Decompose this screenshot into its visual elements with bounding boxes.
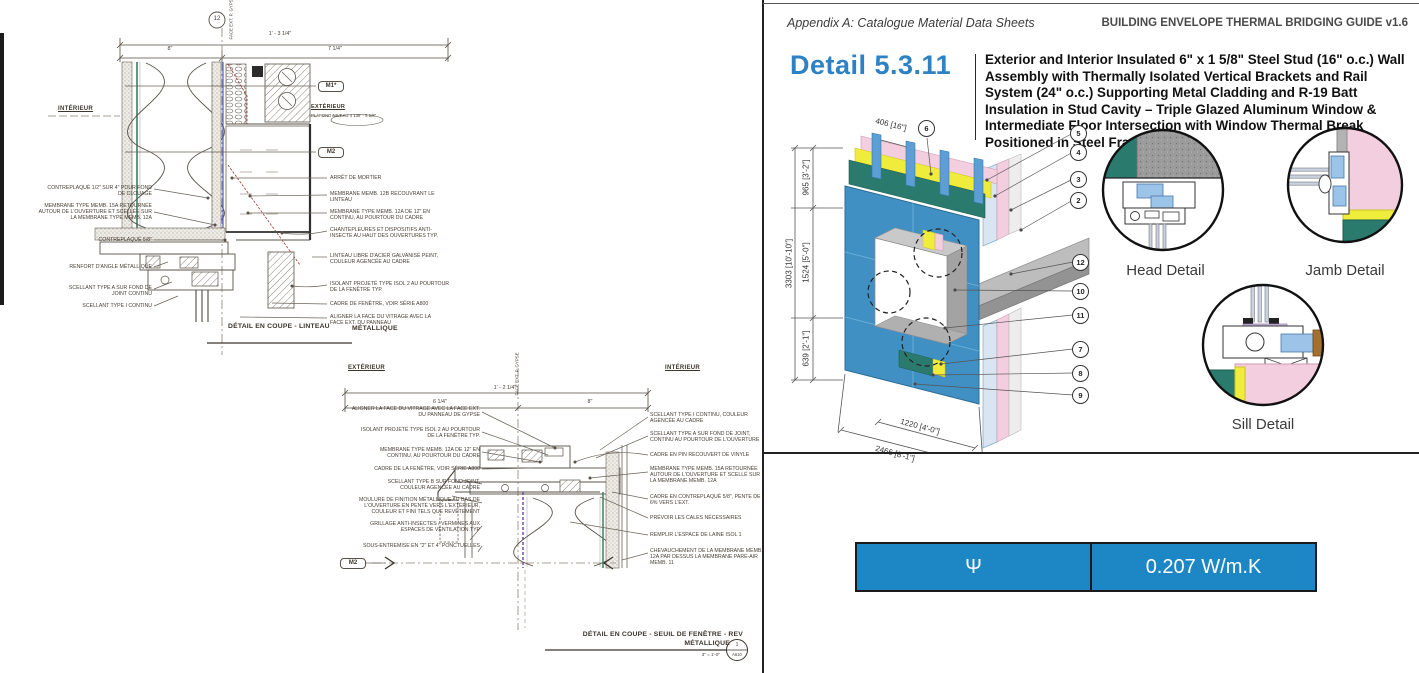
dim-window-height: 1524 [5'-0"] [802, 228, 811, 298]
sill-caption-line1: DÉTAIL EN COUPE - SEUIL DE FENÊTRE - REV [545, 631, 743, 638]
sill-scale: 3" = 1'-0" [645, 652, 720, 657]
sill-exterior-label: EXTÉRIEUR [348, 365, 385, 371]
sill-label-left: SOUS-ENTREMISE EN "2" ET 4" PONCTUELLES [340, 543, 480, 549]
document-page: 12 FACE EXT. P. GYPSE 1' - 3 1/4" 8" 7 1… [0, 0, 1419, 673]
lintel-label-left: CONTREPLAQUÉ 1/2" SUR 4" POUR FOND DE CL… [42, 185, 152, 197]
lintel-label-right: CADRE DE FENÊTRE, VOIR SÉRIE A800 [330, 301, 450, 307]
detail-number: Detail 5.3.11 [790, 50, 951, 81]
sill-caption-line2: MÉTALLIQUE [545, 640, 730, 647]
callout-6: 6 [918, 120, 935, 137]
lintel-label-left: SCELLANT TYPE I CONTINU [62, 303, 152, 309]
sill-label-left: MEMBRANE TYPE MEMB. 12A DE 12" EN CONTIN… [355, 447, 480, 459]
sill-bubble-number: 1 [727, 642, 747, 648]
lintel-label-right: CHANTEPLEURES ET DISPOSITIFS ANTI-INSECT… [330, 227, 450, 239]
dim-below-window: 639 [2'-1"] [802, 319, 811, 379]
jamb-detail-label: Jamb Detail [1300, 262, 1390, 279]
lintel-dim-total: 1' - 3 1/4" [250, 31, 310, 37]
lintel-label-right: MEMBRANE MEMB. 12B RECOUVRANT LE LINTEAU [330, 191, 455, 203]
sill-dim-right: 8" [570, 399, 610, 405]
sill-label-right: MEMBRANE TYPE MEMB. 15A RETOURNÉE AUTOUR… [650, 466, 763, 485]
lintel-dim-right: 7 1/4" [315, 46, 355, 52]
sill-dim-left: 6 1/4" [420, 399, 460, 405]
lintel-callout-m1: M1* [318, 81, 344, 92]
page-divider [762, 0, 764, 673]
sill-dim-total: 1' - 2 1/4" [475, 385, 535, 391]
sill-label-right: SCELLANT TYPE I CONTINU, COULEUR AGENCÉE… [650, 412, 770, 424]
sill-detail-label: Sill Detail [1225, 416, 1301, 433]
lintel-label-left: CONTREPLAQUÉ 5/8" [72, 237, 152, 243]
sill-label-right: PRÉVOIR LES CALES NÉCESSAIRES [650, 515, 763, 521]
lintel-face-ref: FACE EXT. P. GYPSE [229, 0, 234, 40]
lintel-ceiling-label: PLAFOND NIVEAU 4 138' - 5 5/8" [311, 113, 401, 118]
lintel-interior-label: INTÉRIEUR [58, 106, 93, 112]
lintel-dim-left: 8" [150, 46, 190, 52]
dim-above-window: 965 [3'-2"] [802, 148, 811, 208]
psi-value-cell: 0.207 W/m.K [1092, 544, 1315, 590]
lintel-callout-m2: M2 [318, 147, 344, 158]
cad-drawings-linework [0, 0, 763, 673]
guide-title-header: BUILDING ENVELOPE THERMAL BRIDGING GUIDE… [1040, 17, 1408, 29]
sill-label-left: MOULURE DE FINITION MÉTALLIQUE AU BAS DE… [345, 497, 480, 516]
sill-label-right: CADRE EN PIN RECOUVERT DE VINYLE [650, 452, 763, 458]
ceiling-prefix: PLAFOND NIVEAU 4 [311, 113, 352, 118]
psi-value-table: Ψ 0.207 W/m.K [855, 542, 1317, 592]
sill-label-right: CHEVAUCHEMENT DE LA MEMBRANE MEMB. 12A P… [650, 548, 763, 567]
ceiling-elevation: 138' - 5 5/8" [353, 113, 376, 118]
sill-callout-m2: M2 [340, 558, 366, 569]
lintel-label-right: ARRÊT DE MORTIER [330, 175, 450, 181]
sill-label-left: SCELLANT TYPE B SUR FOND JOINT, COULEUR … [365, 479, 480, 491]
sill-label-left: ALIGNER LA FACE DU VITRAGE AVEC LA FACE … [350, 406, 480, 418]
page-top-edge [763, 3, 1419, 4]
appendix-header: Appendix A: Catalogue Material Data Shee… [787, 16, 1035, 30]
lintel-label-right: LINTEAU LIBRE D'ACIER GALVANISÉ PEINT, C… [330, 253, 455, 265]
sill-label-right: SCELLANT TYPE A SUR FOND DE JOINT, CONTI… [650, 431, 763, 443]
lintel-caption: DÉTAIL EN COUPE - LINTEAU [228, 323, 363, 330]
lintel-label-left: SCELLANT TYPE A SUR FOND DE JOINT CONTIN… [67, 285, 152, 297]
lintel-label-left: RENFORT D'ANGLE MÉTALLIQUE [47, 264, 152, 270]
dim-total-height: 3303 [10'-10"] [785, 219, 794, 309]
lintel-label-right: MEMBRANE TYPE MEMB. 12A DE 12" EN CONTIN… [330, 209, 455, 221]
lintel-label-right: ISOLANT PROJETÉ TYPE ISOL 2 AU POURTOUR … [330, 281, 450, 293]
sill-label-left: GRILLAGE ANTI-INSECTES / VERMINES AUX ES… [365, 521, 480, 533]
psi-symbol-cell: Ψ [857, 544, 1092, 590]
figure-divider-rule [764, 452, 1419, 454]
sill-label-right: CADRE EN CONTREPLAQUÉ 5/8", PENTE DE 6% … [650, 494, 763, 506]
sill-label-left: CADRE DE LA FENÊTRE, VOIR SÉRIE A800 [360, 466, 480, 472]
axonometric-wall-assembly [783, 112, 1103, 452]
sill-interior-label: INTÉRIEUR [665, 365, 700, 371]
sill-bubble-sheet: A610 [725, 652, 749, 657]
lintel-caption-overlap: MÉTALLIQUE [352, 325, 412, 332]
lintel-exterior-label: EXTÉRIEUR [311, 104, 345, 110]
lintel-detail-bubble: 12 [209, 16, 225, 22]
head-detail-label: Head Detail [1123, 262, 1208, 279]
sill-label-left: ISOLANT PROJETÉ TYPE ISOL 2 AU POURTOUR … [360, 427, 480, 439]
lintel-label-left: MEMBRANE TYPE MEMB. 15A RETOURNÉE AUTOUR… [37, 203, 152, 222]
sill-label-right: REMPLIR L'ESPACE DE LAINE ISOL 1 [650, 532, 763, 538]
